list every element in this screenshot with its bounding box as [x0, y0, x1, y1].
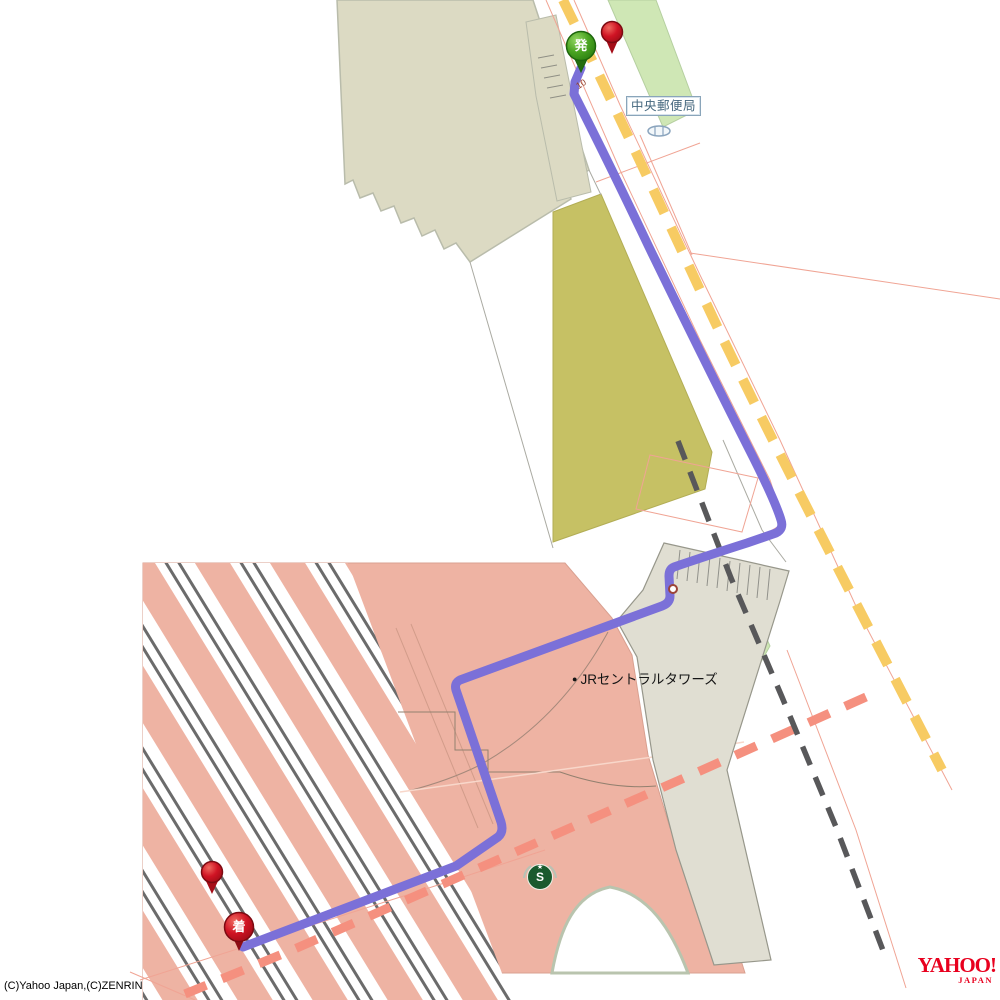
route-node-icon [669, 585, 677, 593]
red-pin-top-icon[interactable] [602, 22, 623, 55]
post-office-label: 中央郵便局 [626, 96, 701, 116]
poi-bullet-icon: ● [572, 674, 577, 684]
yahoo-logo-japan-text: JAPAN [902, 976, 996, 985]
departure-marker[interactable] [567, 32, 596, 73]
copyright-text: (C)Yahoo Japan,(C)ZENRIN [4, 980, 143, 992]
yahoo-japan-logo[interactable]: YAHOO! JAPAN [902, 954, 996, 985]
jr-central-towers-text: JRセントラルタワーズ [580, 672, 717, 687]
jr-central-towers-label: ●JRセントラルタワーズ [572, 668, 718, 688]
map-canvas[interactable]: 発 着 ★ S 中央郵便局 ●JRセントラルタワーズ 10 (C)Yahoo J… [0, 0, 1000, 1000]
map-graphics [0, 0, 1000, 1000]
yahoo-logo-text: YAHOO! [902, 954, 996, 976]
underpass-icon [648, 126, 670, 136]
